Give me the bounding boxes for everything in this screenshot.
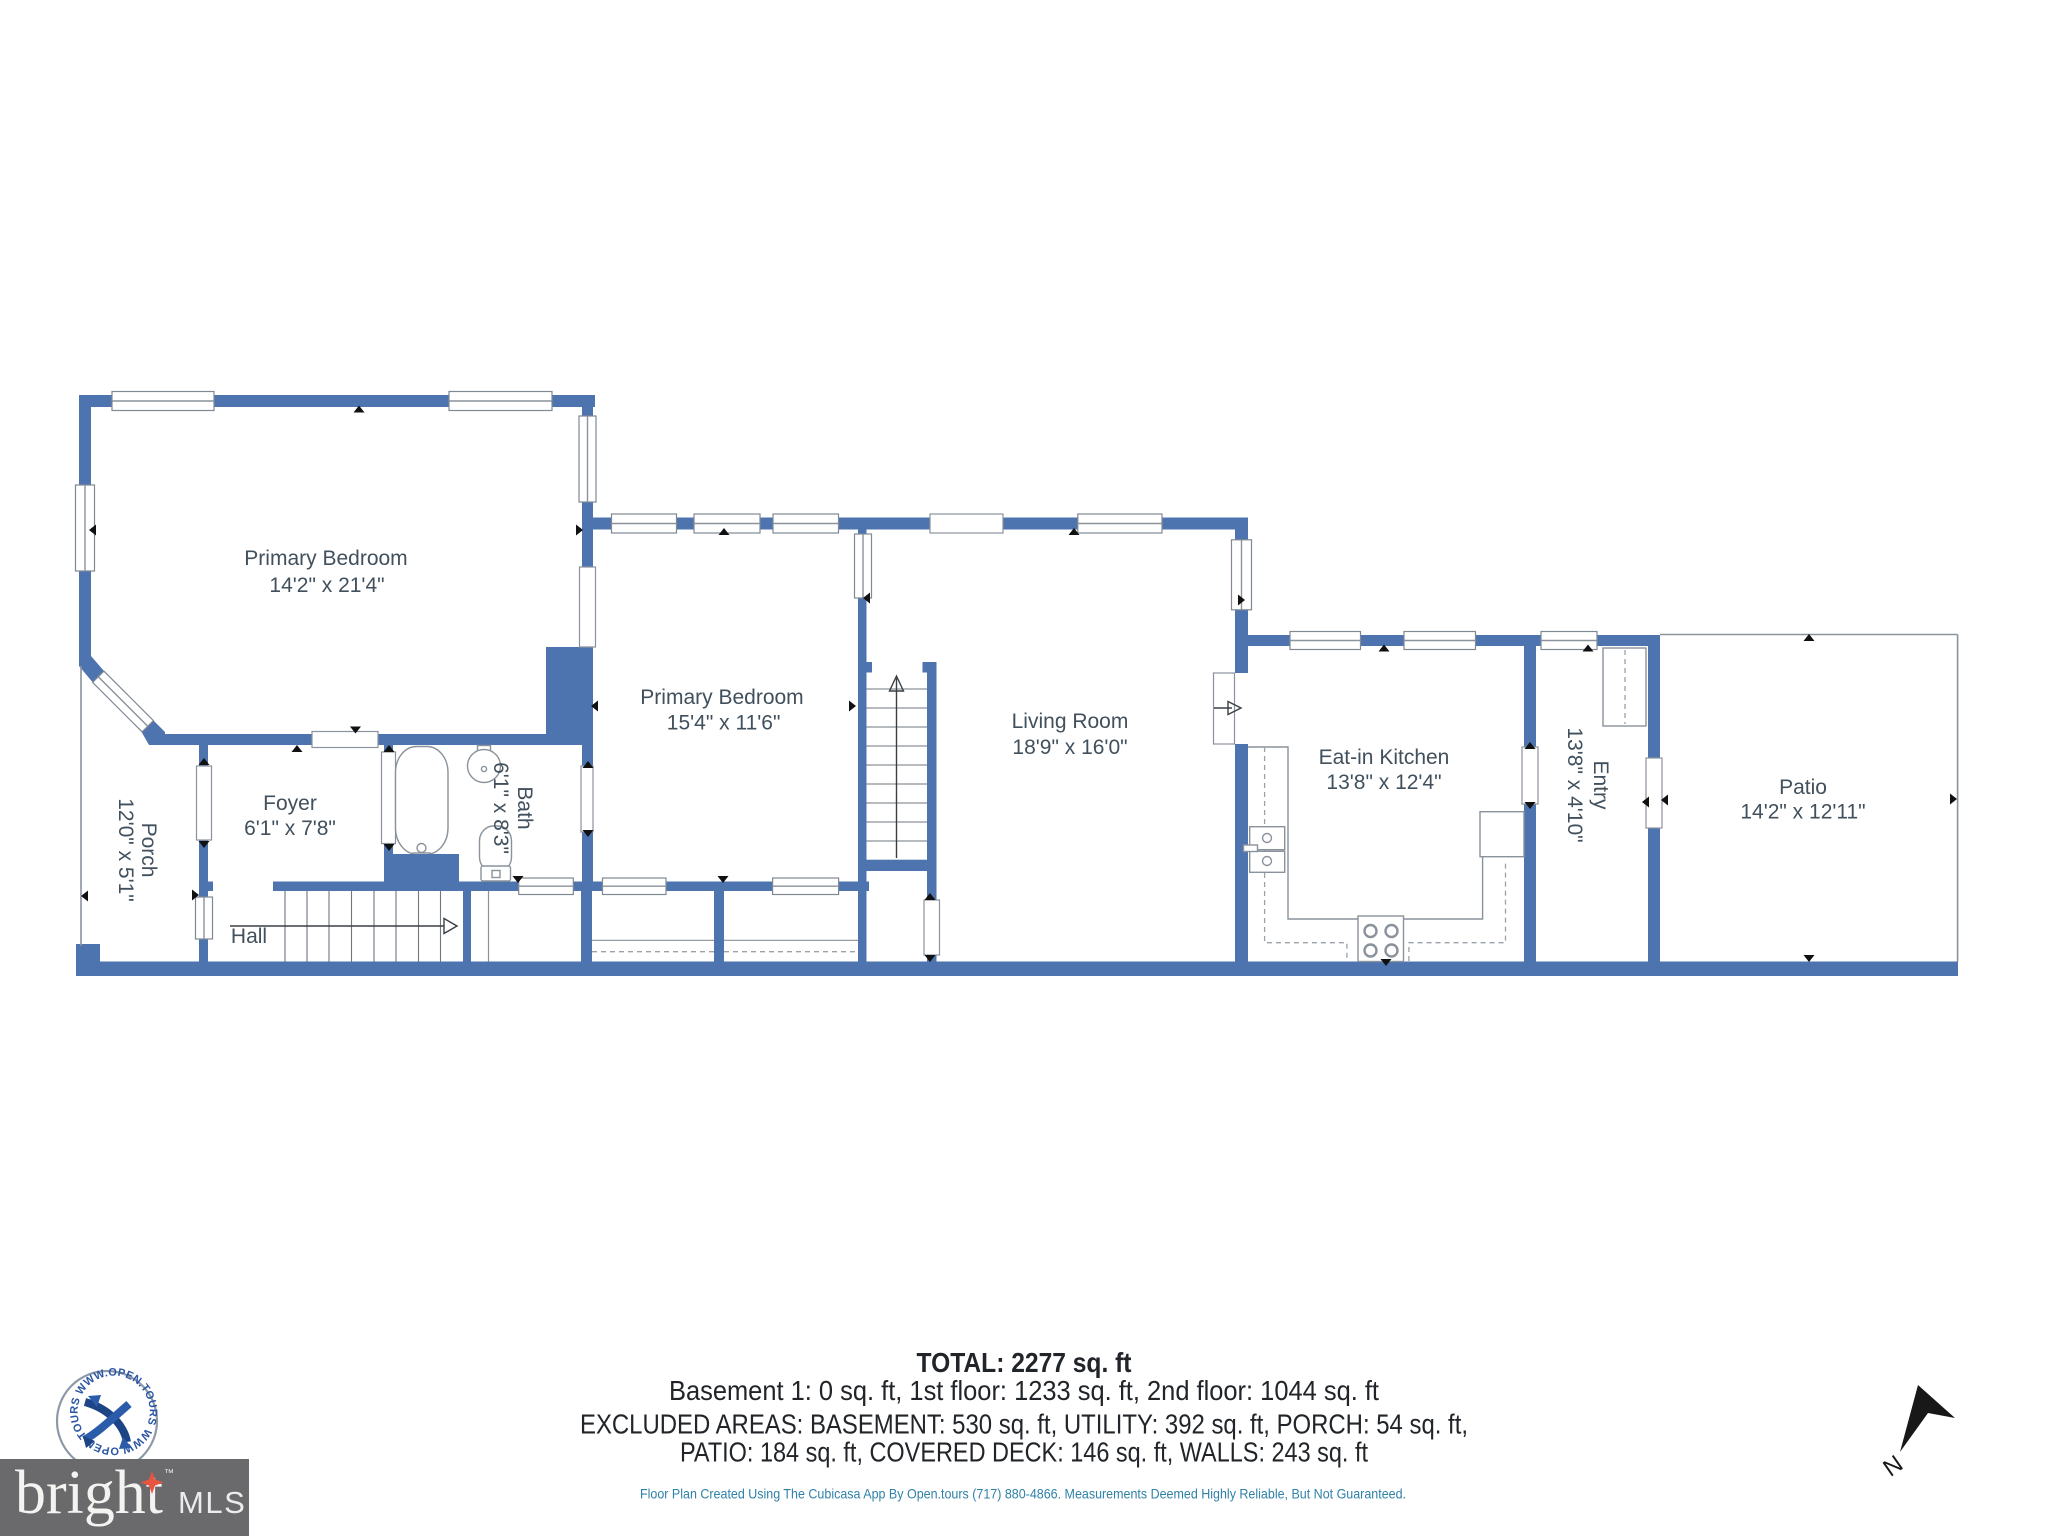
svg-text:Floor Plan Created Using The C: Floor Plan Created Using The Cubicasa Ap… xyxy=(640,1486,1406,1502)
svg-text:Hall: Hall xyxy=(231,925,267,948)
svg-text:EXCLUDED AREAS: BASEMENT: 530: EXCLUDED AREAS: BASEMENT: 530 sq. ft, UT… xyxy=(580,1409,1468,1440)
svg-text:PATIO: 184 sq. ft, COVERED DEC: PATIO: 184 sq. ft, COVERED DECK: 146 sq.… xyxy=(680,1437,1368,1468)
svg-text:MLS: MLS xyxy=(178,1485,246,1520)
svg-text:™: ™ xyxy=(164,1468,174,1479)
svg-text:bright: bright xyxy=(15,1459,163,1527)
svg-text:Basement 1: 0 sq. ft, 1st floo: Basement 1: 0 sq. ft, 1st floor: 1233 sq… xyxy=(669,1375,1379,1406)
svg-text:TOTAL: 2277 sq. ft: TOTAL: 2277 sq. ft xyxy=(917,1347,1132,1378)
